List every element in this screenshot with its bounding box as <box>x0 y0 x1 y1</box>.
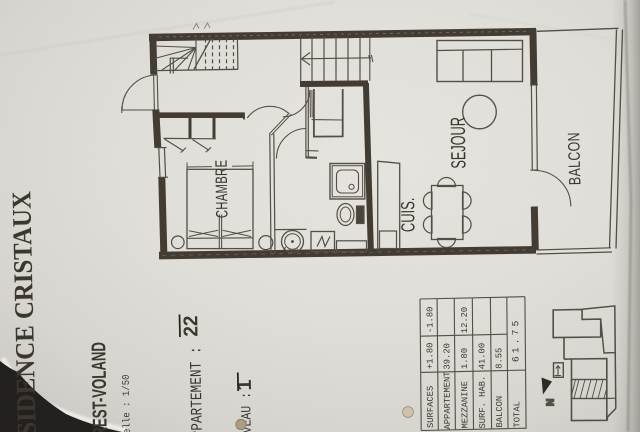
svg-text:BALCON: BALCON <box>566 132 585 186</box>
svg-text:SURFACES: SURFACES <box>426 386 436 428</box>
svg-text:61.75: 61.75 <box>510 317 521 362</box>
svg-text:Echelle : 1/50: Echelle : 1/50 <box>120 374 133 432</box>
svg-text:SURF. HAB.: SURF. HAB. <box>478 376 488 429</box>
svg-text:BALCON: BALCON <box>495 396 505 428</box>
svg-text:APPARTEMENT: APPARTEMENT <box>442 371 453 429</box>
svg-text:N: N <box>546 399 557 406</box>
svg-text:12.20: 12.20 <box>460 307 470 333</box>
svg-text:+1.80: +1.80 <box>425 343 435 369</box>
svg-text:CREST-VOLAND: CREST-VOLAND <box>87 342 111 432</box>
svg-text:TOTAL: TOTAL <box>512 401 522 427</box>
svg-text:-1.80: -1.80 <box>425 307 435 333</box>
svg-text:CHAMBRE: CHAMBRE <box>211 160 231 219</box>
svg-text:41.00: 41.00 <box>477 343 487 369</box>
svg-text:APPARTEMENT :: APPARTEMENT : <box>188 346 207 432</box>
svg-text:39.20: 39.20 <box>442 343 452 369</box>
svg-text:1.80: 1.80 <box>460 348 470 369</box>
svg-text:SEJOUR: SEJOUR <box>447 117 471 169</box>
svg-text:22: 22 <box>180 315 203 337</box>
svg-text:MEZZANINE: MEZZANINE <box>460 381 470 429</box>
svg-text:CUIS.: CUIS. <box>398 197 420 232</box>
svg-text:8.55: 8.55 <box>494 348 504 369</box>
